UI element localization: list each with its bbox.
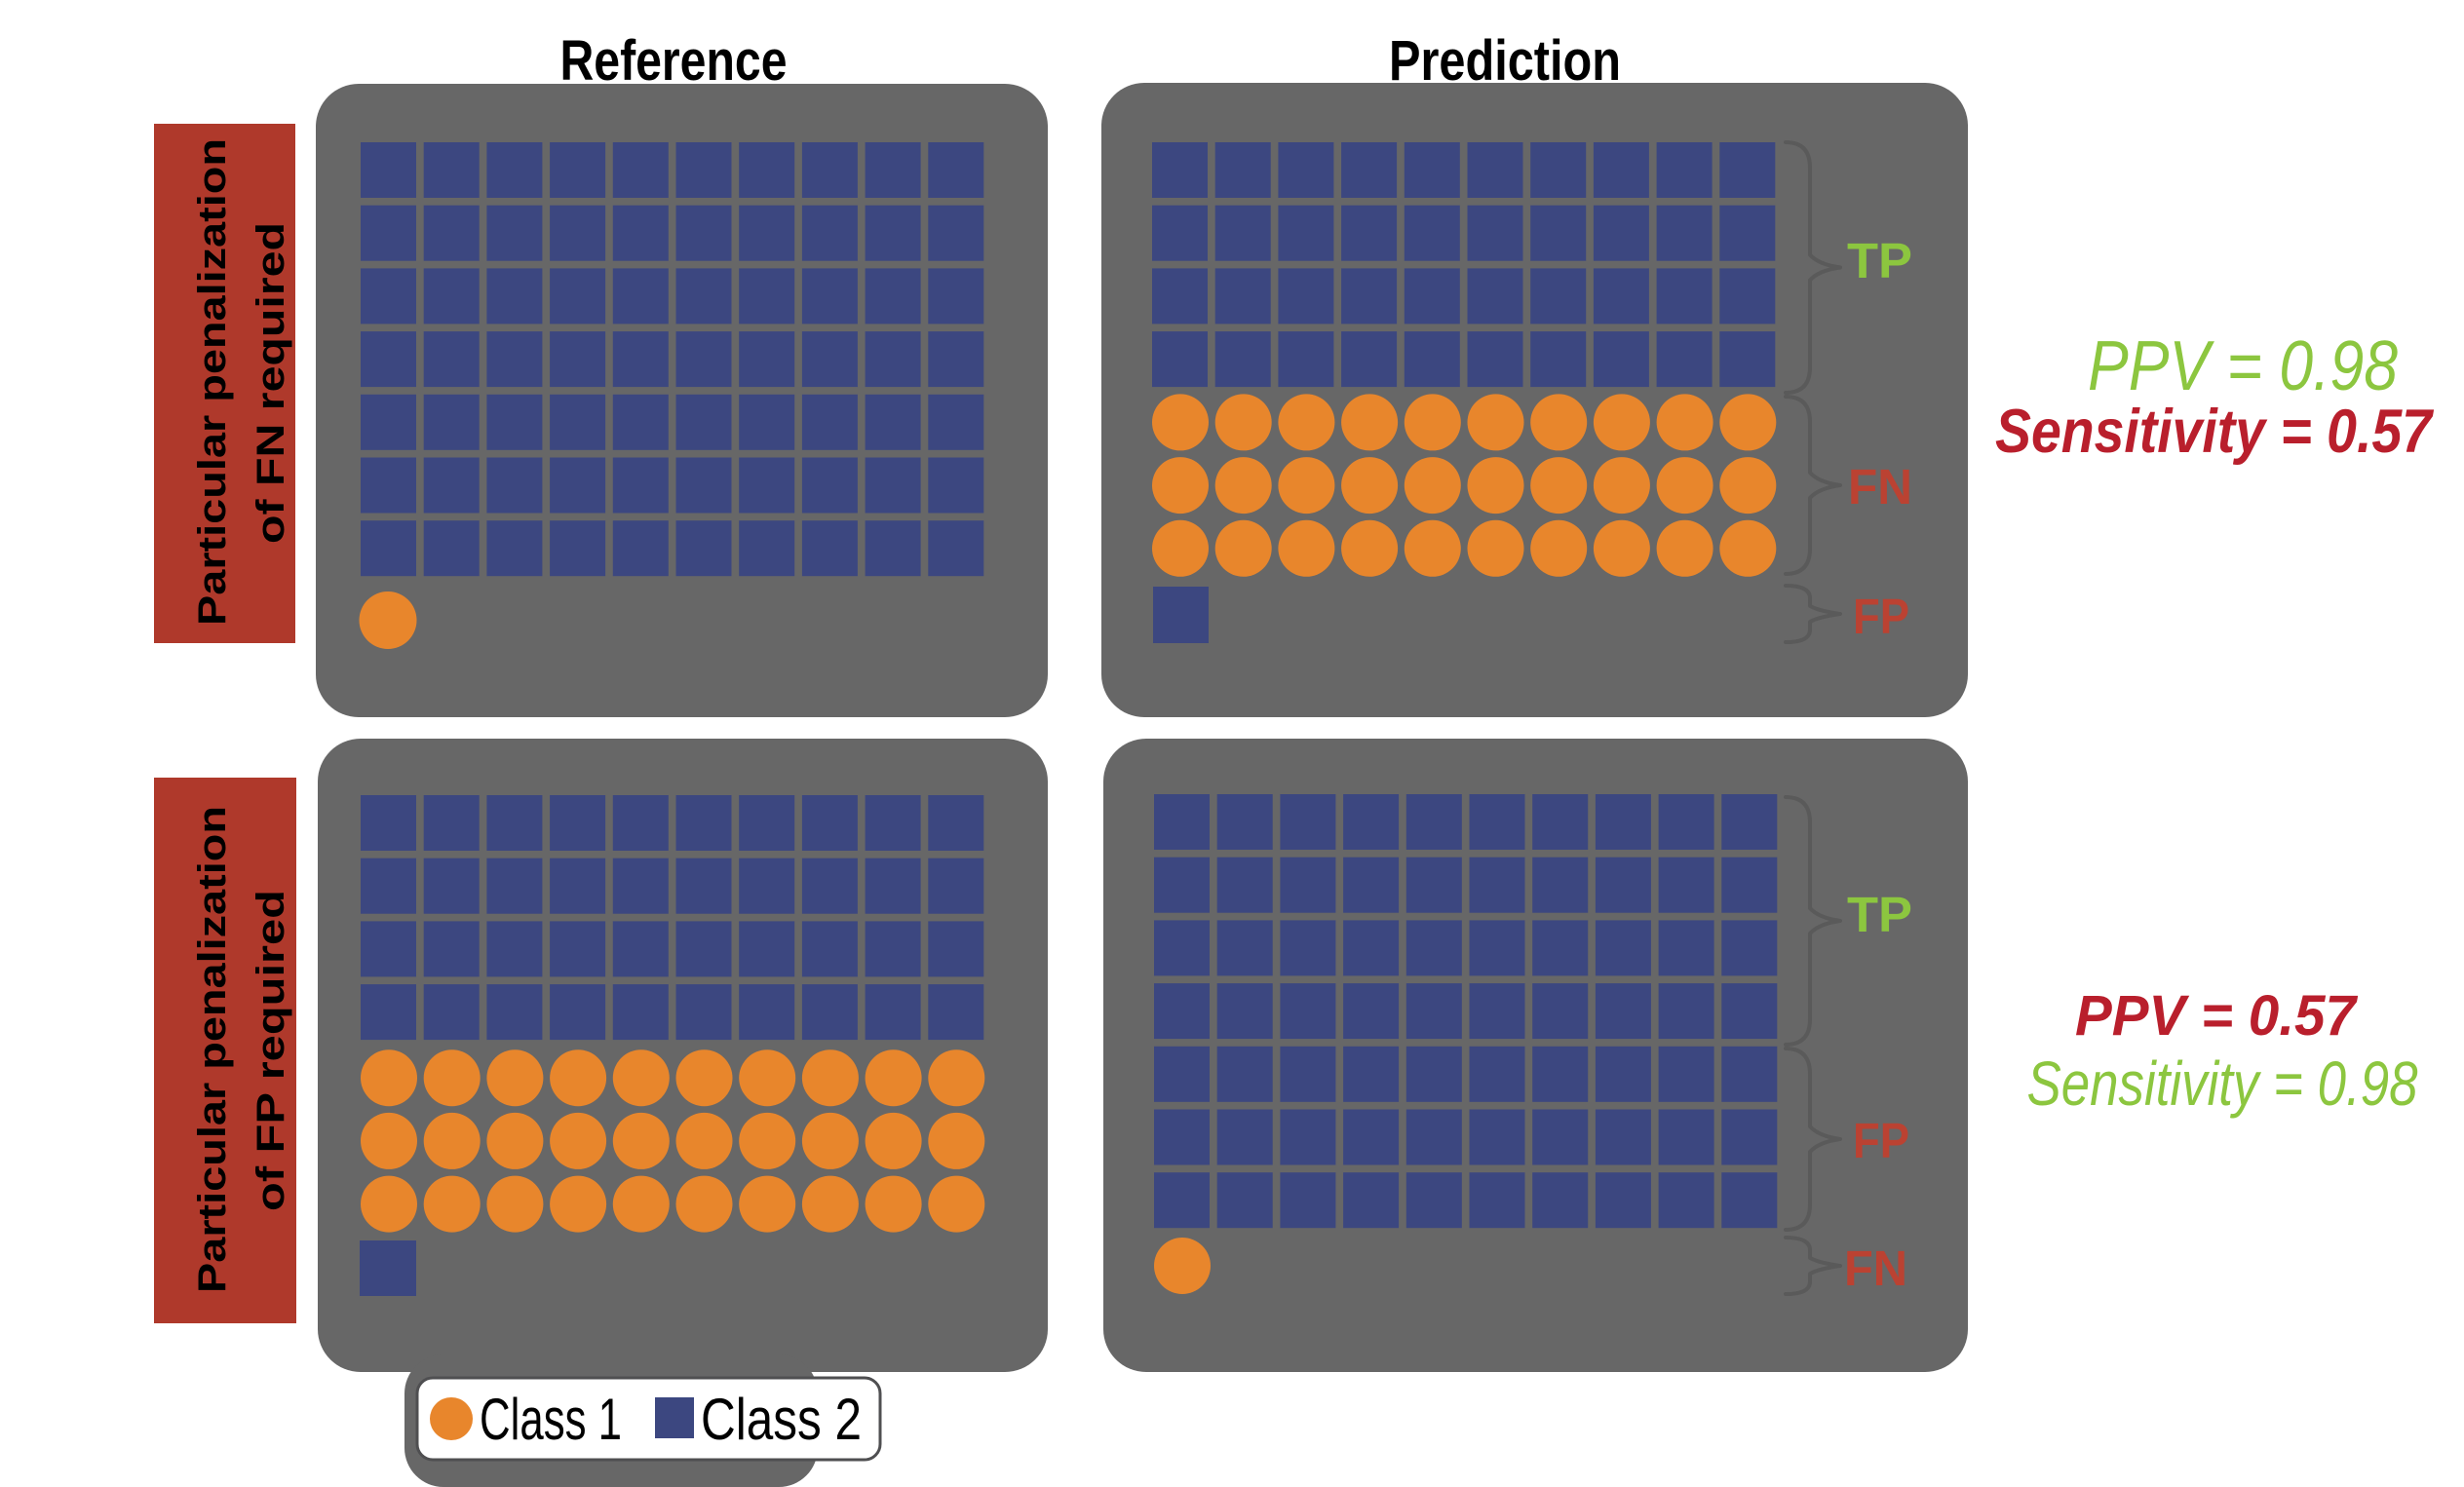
svg-text:of FP required: of FP required — [250, 890, 292, 1211]
svg-text:Sensitivity = 0.98: Sensitivity = 0.98 — [2027, 1049, 2418, 1119]
svg-text:PPV = 0.57: PPV = 0.57 — [2075, 984, 2359, 1048]
svg-text:Reference: Reference — [560, 29, 788, 93]
svg-text:FN: FN — [1848, 459, 1912, 515]
svg-text:of FN required: of FN required — [250, 222, 292, 544]
svg-text:TP: TP — [1847, 887, 1912, 942]
svg-text:FN: FN — [1844, 1240, 1907, 1296]
svg-text:PPV = 0.98: PPV = 0.98 — [2088, 327, 2398, 405]
svg-text:Particular penalization: Particular penalization — [191, 138, 234, 626]
svg-text:Particular penalization: Particular penalization — [191, 806, 234, 1293]
svg-text:Class 2: Class 2 — [701, 1387, 862, 1452]
svg-text:TP: TP — [1847, 233, 1912, 288]
svg-text:FP: FP — [1853, 1113, 1909, 1168]
svg-text:Class 1: Class 1 — [480, 1387, 622, 1452]
svg-text:FP: FP — [1853, 589, 1909, 644]
svg-text:Sensitivity = 0.57: Sensitivity = 0.57 — [1995, 398, 2435, 466]
